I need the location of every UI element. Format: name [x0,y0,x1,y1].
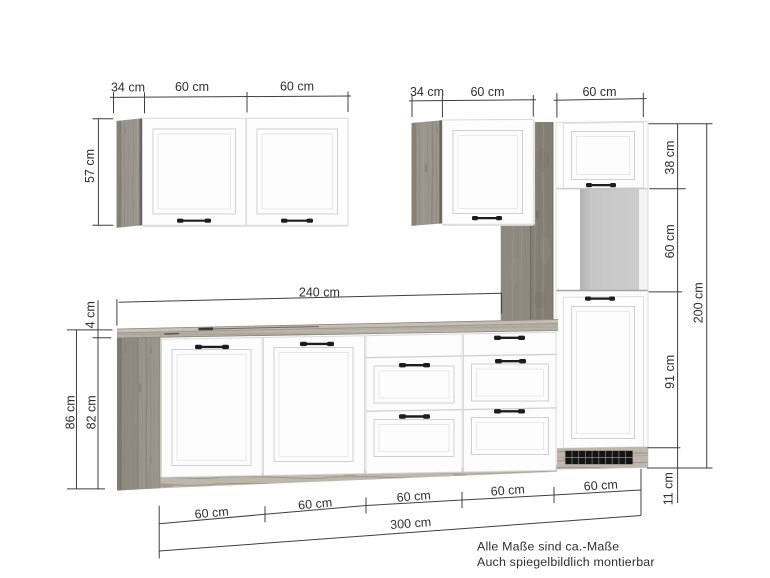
svg-text:60 cm: 60 cm [194,505,229,522]
svg-text:82 cm: 82 cm [85,395,99,429]
svg-text:4 cm: 4 cm [83,301,97,328]
svg-text:Auch spiegelbildlich montierba: Auch spiegelbildlich montierbar [477,555,655,569]
svg-text:60 cm: 60 cm [396,488,431,505]
svg-text:60 cm: 60 cm [175,80,209,94]
svg-text:240 cm: 240 cm [299,286,340,300]
svg-text:91 cm: 91 cm [663,355,677,389]
svg-text:34 cm: 34 cm [111,81,145,95]
svg-text:34 cm: 34 cm [410,85,444,99]
svg-text:60 cm: 60 cm [663,224,677,258]
svg-text:60 cm: 60 cm [298,496,333,513]
svg-text:60 cm: 60 cm [490,482,525,498]
svg-text:60 cm: 60 cm [583,477,618,493]
svg-text:300 cm: 300 cm [390,515,432,532]
svg-text:11 cm: 11 cm [662,472,676,505]
svg-text:38 cm: 38 cm [663,141,677,175]
svg-text:86 cm: 86 cm [64,395,78,429]
svg-text:60 cm: 60 cm [280,80,314,94]
svg-text:57 cm: 57 cm [83,149,97,183]
svg-text:60 cm: 60 cm [470,85,504,99]
svg-text:60 cm: 60 cm [582,85,616,99]
svg-text:200 cm: 200 cm [691,282,705,323]
svg-text:Alle Maße sind ca.-Maße: Alle Maße sind ca.-Maße [477,539,619,553]
